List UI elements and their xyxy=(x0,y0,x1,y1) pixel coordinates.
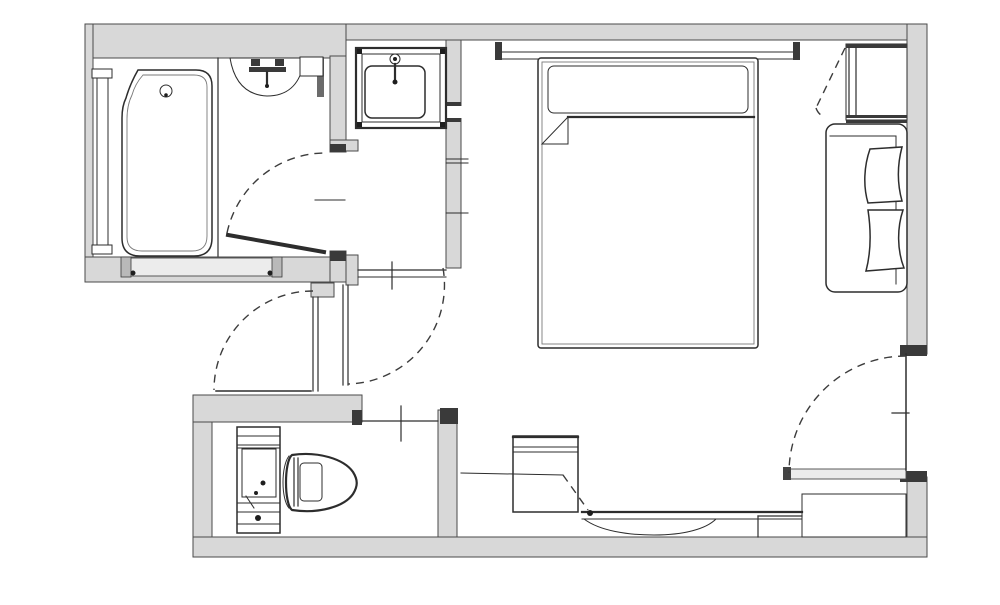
rail-stop xyxy=(131,271,136,276)
headboard-cap-left xyxy=(495,42,502,60)
bathtub-drain-dot xyxy=(164,93,168,97)
vestibule-door xyxy=(343,268,444,385)
window-cap-top xyxy=(92,69,112,78)
bedroom xyxy=(495,42,800,348)
desk-front-curve xyxy=(584,519,716,535)
rail-stop xyxy=(268,271,273,276)
wall-toilet-top xyxy=(193,395,362,422)
wall-right-upper xyxy=(907,24,927,354)
vanity-corner-bolt xyxy=(440,49,445,54)
bathroom-door-swing xyxy=(227,153,323,233)
double-bed xyxy=(495,42,800,348)
jamb-corridor xyxy=(440,408,458,424)
closet xyxy=(816,44,907,123)
wall-top-right xyxy=(346,24,927,40)
bath-threshold xyxy=(127,258,278,276)
closet-bottom-rail xyxy=(846,115,907,118)
closet-door-swing xyxy=(816,48,845,108)
toilet-seat xyxy=(300,463,322,501)
jamb-entry-top xyxy=(900,345,927,356)
toilet-lobby-door xyxy=(214,291,318,391)
cistern-bolt xyxy=(261,481,266,486)
entrance-sill-cap xyxy=(783,467,791,480)
luggage-bench-area xyxy=(826,124,907,292)
closet-bottom-rail xyxy=(846,120,907,123)
bathroom-door-leaf xyxy=(228,235,324,252)
wall-vestibule-block xyxy=(346,255,358,285)
window-cap-bottom xyxy=(92,245,112,254)
luggage-rack-lower xyxy=(866,210,904,271)
cistern-panel xyxy=(242,449,276,497)
bath-threshold-cap-left xyxy=(121,257,131,277)
bath-threshold-cap-right xyxy=(272,257,282,277)
faucet-handle-icon xyxy=(251,59,260,66)
headboard-cap-right xyxy=(793,42,800,60)
closet-box xyxy=(846,44,907,120)
floor-plan-image xyxy=(0,0,1000,605)
shower-counter xyxy=(230,57,323,96)
wall-top-left xyxy=(85,24,346,58)
desk-leader-dot xyxy=(587,510,593,516)
bathroom xyxy=(92,57,345,277)
vanity-corner-bolt xyxy=(357,49,362,54)
bed-pillow xyxy=(548,66,748,113)
closet-top-rail xyxy=(846,44,907,48)
wall-break-cap-top xyxy=(446,102,461,106)
jamb-bathroom-door-bottom xyxy=(330,251,346,261)
entrance xyxy=(758,354,909,537)
lobby-door-swing xyxy=(214,291,313,390)
closet-door-swing-end xyxy=(816,108,824,117)
vanity-faucet-knob-dot xyxy=(393,57,397,61)
cistern-bolt xyxy=(255,515,261,521)
luggage-rack-upper xyxy=(865,147,902,203)
bath-shelf xyxy=(300,57,323,76)
vanity-faucet-tip xyxy=(393,80,398,85)
wall-bottom xyxy=(193,537,927,557)
vanity-corner-bolt xyxy=(357,122,362,127)
desk-area xyxy=(461,436,802,535)
entrance-step xyxy=(802,494,906,537)
vanity-corner-bolt xyxy=(440,122,445,127)
wall-lobby-jamb xyxy=(311,283,334,297)
bath-window xyxy=(92,69,112,254)
toilet xyxy=(237,427,357,533)
floor-plan-svg xyxy=(0,0,1000,605)
wall-bath-right-upper xyxy=(330,56,346,152)
wall-toilet-right xyxy=(438,410,457,537)
toilet-room xyxy=(237,406,438,533)
wall-break-cap-bottom xyxy=(446,118,461,122)
faucet-handle-icon xyxy=(275,59,284,66)
cistern-bolt xyxy=(254,491,258,495)
vestibule-door-swing xyxy=(348,268,444,384)
entrance-door-swing xyxy=(789,356,906,473)
wall-powder-right xyxy=(446,40,461,268)
wall-left xyxy=(85,24,93,282)
bathtub xyxy=(122,70,212,256)
bathtub-outline xyxy=(122,70,212,256)
jamb-bathroom-door-top xyxy=(330,144,346,152)
bathroom-door xyxy=(227,153,345,252)
entrance-sill xyxy=(789,469,906,479)
jamb-toilet-door-left xyxy=(352,410,362,425)
faucet-spout-tip xyxy=(265,84,269,88)
